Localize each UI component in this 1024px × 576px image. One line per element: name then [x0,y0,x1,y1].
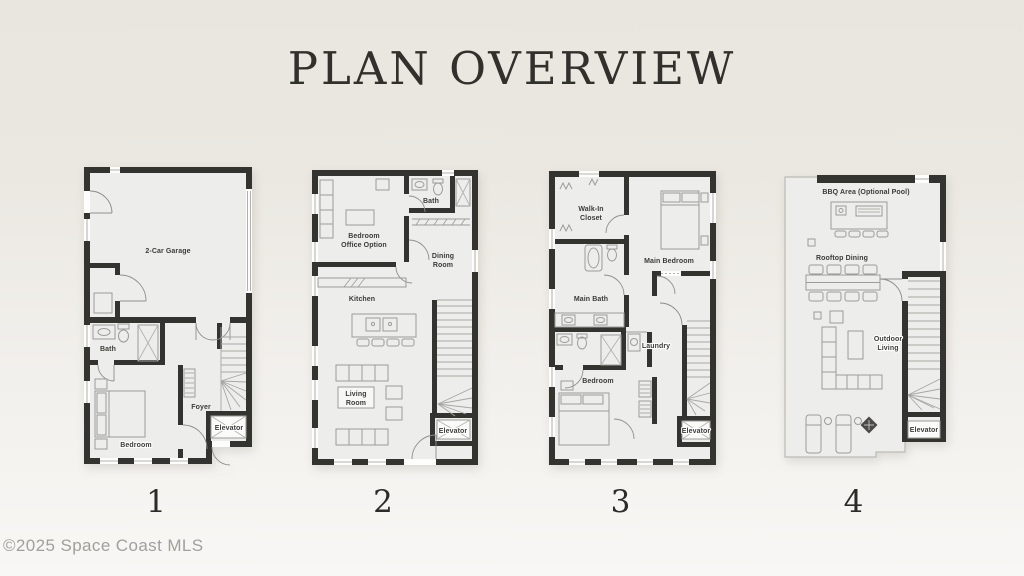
label-garage: 2-Car Garage [145,248,190,255]
floor-plan-1: Elevator 2-Car Garage Bath Bedroom Foyer [84,167,252,472]
mls-copyright: ©2025 Space Coast MLS [3,536,203,556]
linen-closet [184,369,195,397]
elevator-shaft: Elevator [437,420,470,439]
label-bath: Bath [423,198,439,205]
label-outdoor-living: Outdoor [874,336,902,343]
label-kitchen: Kitchen [349,296,375,303]
label-walk-in-2: Closet [580,215,603,222]
page-title: PLAN OVERVIEW [0,42,1024,95]
label-living: Living [345,391,366,398]
floor-number-3: 3 [537,484,704,520]
label-rooftop-dining: Rooftop Dining [816,255,868,262]
label-elevator: Elevator [439,428,468,435]
label-dining: Dining [432,253,454,260]
label-main-bedroom: Main Bedroom [644,258,694,265]
elevator-shaft: Elevator [211,416,246,438]
floor-number-4: 4 [772,484,935,520]
label-walk-in: Walk-In [578,206,603,213]
label-elevator: Elevator [215,425,244,432]
label-elevator: Elevator [910,427,939,434]
label-elevator: Elevator [682,428,711,435]
label-foyer: Foyer [191,404,211,411]
label-bath: Bath [100,346,116,353]
floor-plan-4: Elevator BBQ Area (Optional Pool) Roofto… [784,175,947,467]
label-bedroom-office: Bedroom [348,233,379,240]
label-bbq-area: BBQ Area (Optional Pool) [822,189,909,196]
label-laundry: Laundry [642,343,670,350]
plan-overview-page: PLAN OVERVIEW [0,0,1024,576]
label-dining-2: Room [433,262,453,269]
floor-number-2: 2 [300,484,466,520]
floor-plan-3: Elevator Walk-In Closet Main Bedroom Mai… [549,171,716,470]
label-main-bath: Main Bath [574,296,608,303]
label-bedroom-office-2: Office Option [341,242,387,249]
label-bedroom: Bedroom [582,378,613,385]
floor-plan-2: Elevator Bedroom Office Option Bath Dini… [312,170,478,470]
label-living-2: Room [346,400,366,407]
elevator-shaft: Elevator [682,421,711,439]
floor-number-1: 1 [72,484,240,520]
elevator-shaft: Elevator [908,421,940,438]
label-bedroom: Bedroom [120,442,151,449]
label-outdoor-living-2: Living [877,345,898,352]
